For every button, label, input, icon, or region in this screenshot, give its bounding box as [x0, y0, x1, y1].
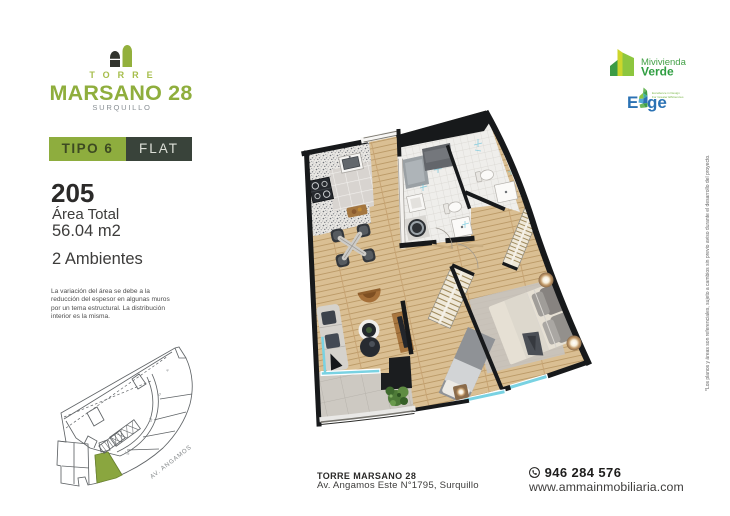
svg-text:a: a [165, 367, 171, 373]
svg-text:105: 105 [124, 450, 131, 456]
